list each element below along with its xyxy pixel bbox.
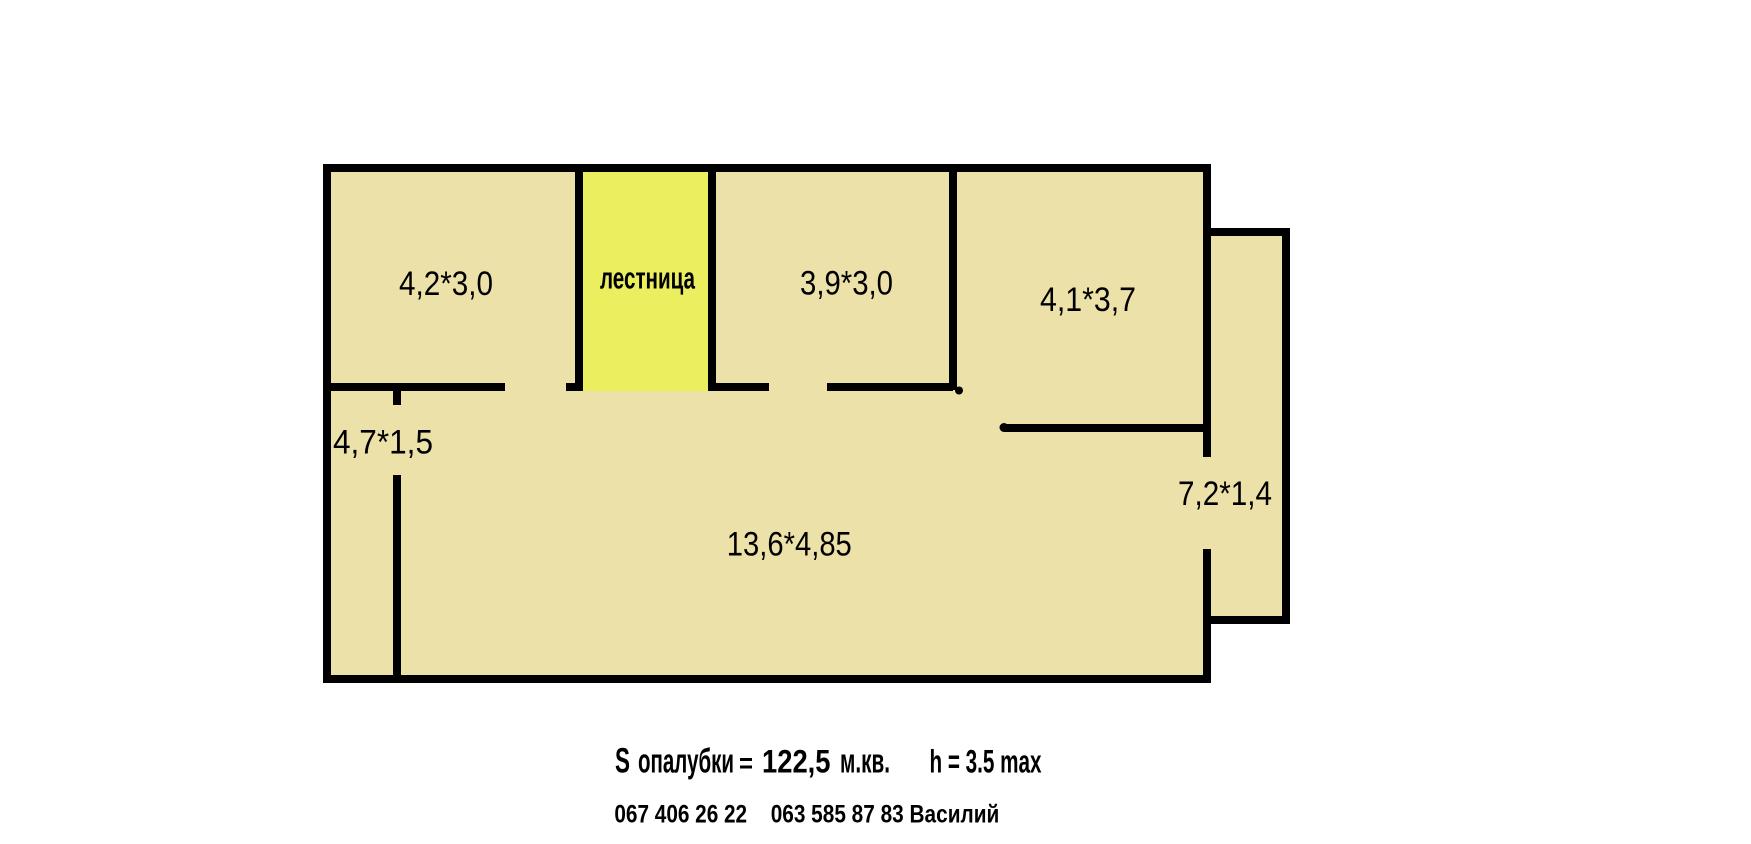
svg-text:122,5: 122,5: [762, 744, 831, 780]
svg-text:4,2*3,0: 4,2*3,0: [399, 265, 493, 303]
svg-text:4,1*3,7: 4,1*3,7: [1040, 281, 1136, 319]
svg-text:067 406 26 22: 067 406 26 22: [614, 801, 747, 829]
svg-text:опалубки: опалубки: [638, 743, 734, 781]
svg-text:м.кв.: м.кв.: [840, 743, 890, 781]
svg-text:S: S: [615, 742, 630, 781]
svg-text:063 585 87 83 Василий: 063 585 87 83 Василий: [771, 801, 1000, 829]
svg-text:13,6*4,85: 13,6*4,85: [727, 526, 852, 564]
svg-text:лестница: лестница: [600, 261, 696, 296]
svg-text:h = 3.5 max: h = 3.5 max: [930, 744, 1042, 780]
svg-text:7,2*1,4: 7,2*1,4: [1178, 475, 1272, 513]
svg-text:=: =: [739, 748, 753, 779]
svg-text:3,9*3,0: 3,9*3,0: [800, 265, 893, 303]
svg-text:4,7*1,5: 4,7*1,5: [333, 424, 433, 462]
